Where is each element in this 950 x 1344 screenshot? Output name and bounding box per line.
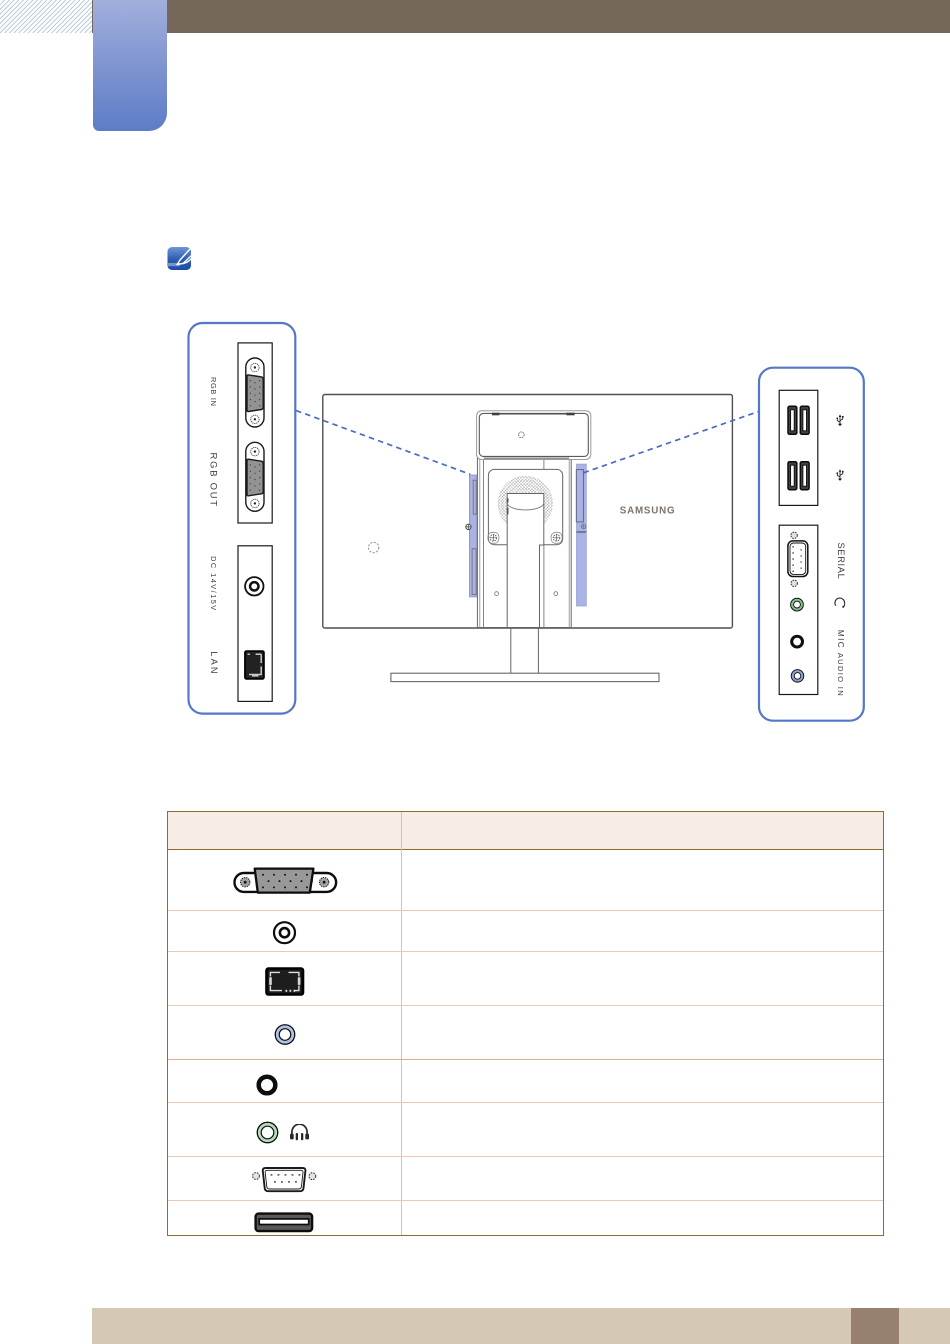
svg-text:MIC: MIC: [836, 630, 845, 649]
svg-text:RGB OUT: RGB OUT: [209, 453, 220, 508]
svg-text:SAMSUNG: SAMSUNG: [620, 505, 676, 516]
svg-text:DC 14V/15V: DC 14V/15V: [209, 556, 218, 612]
svg-text:SERIAL: SERIAL: [836, 543, 846, 580]
svg-text:LAN: LAN: [209, 651, 219, 675]
svg-text:AUDIO IN: AUDIO IN: [836, 653, 845, 697]
svg-text:RGB IN: RGB IN: [209, 377, 218, 407]
